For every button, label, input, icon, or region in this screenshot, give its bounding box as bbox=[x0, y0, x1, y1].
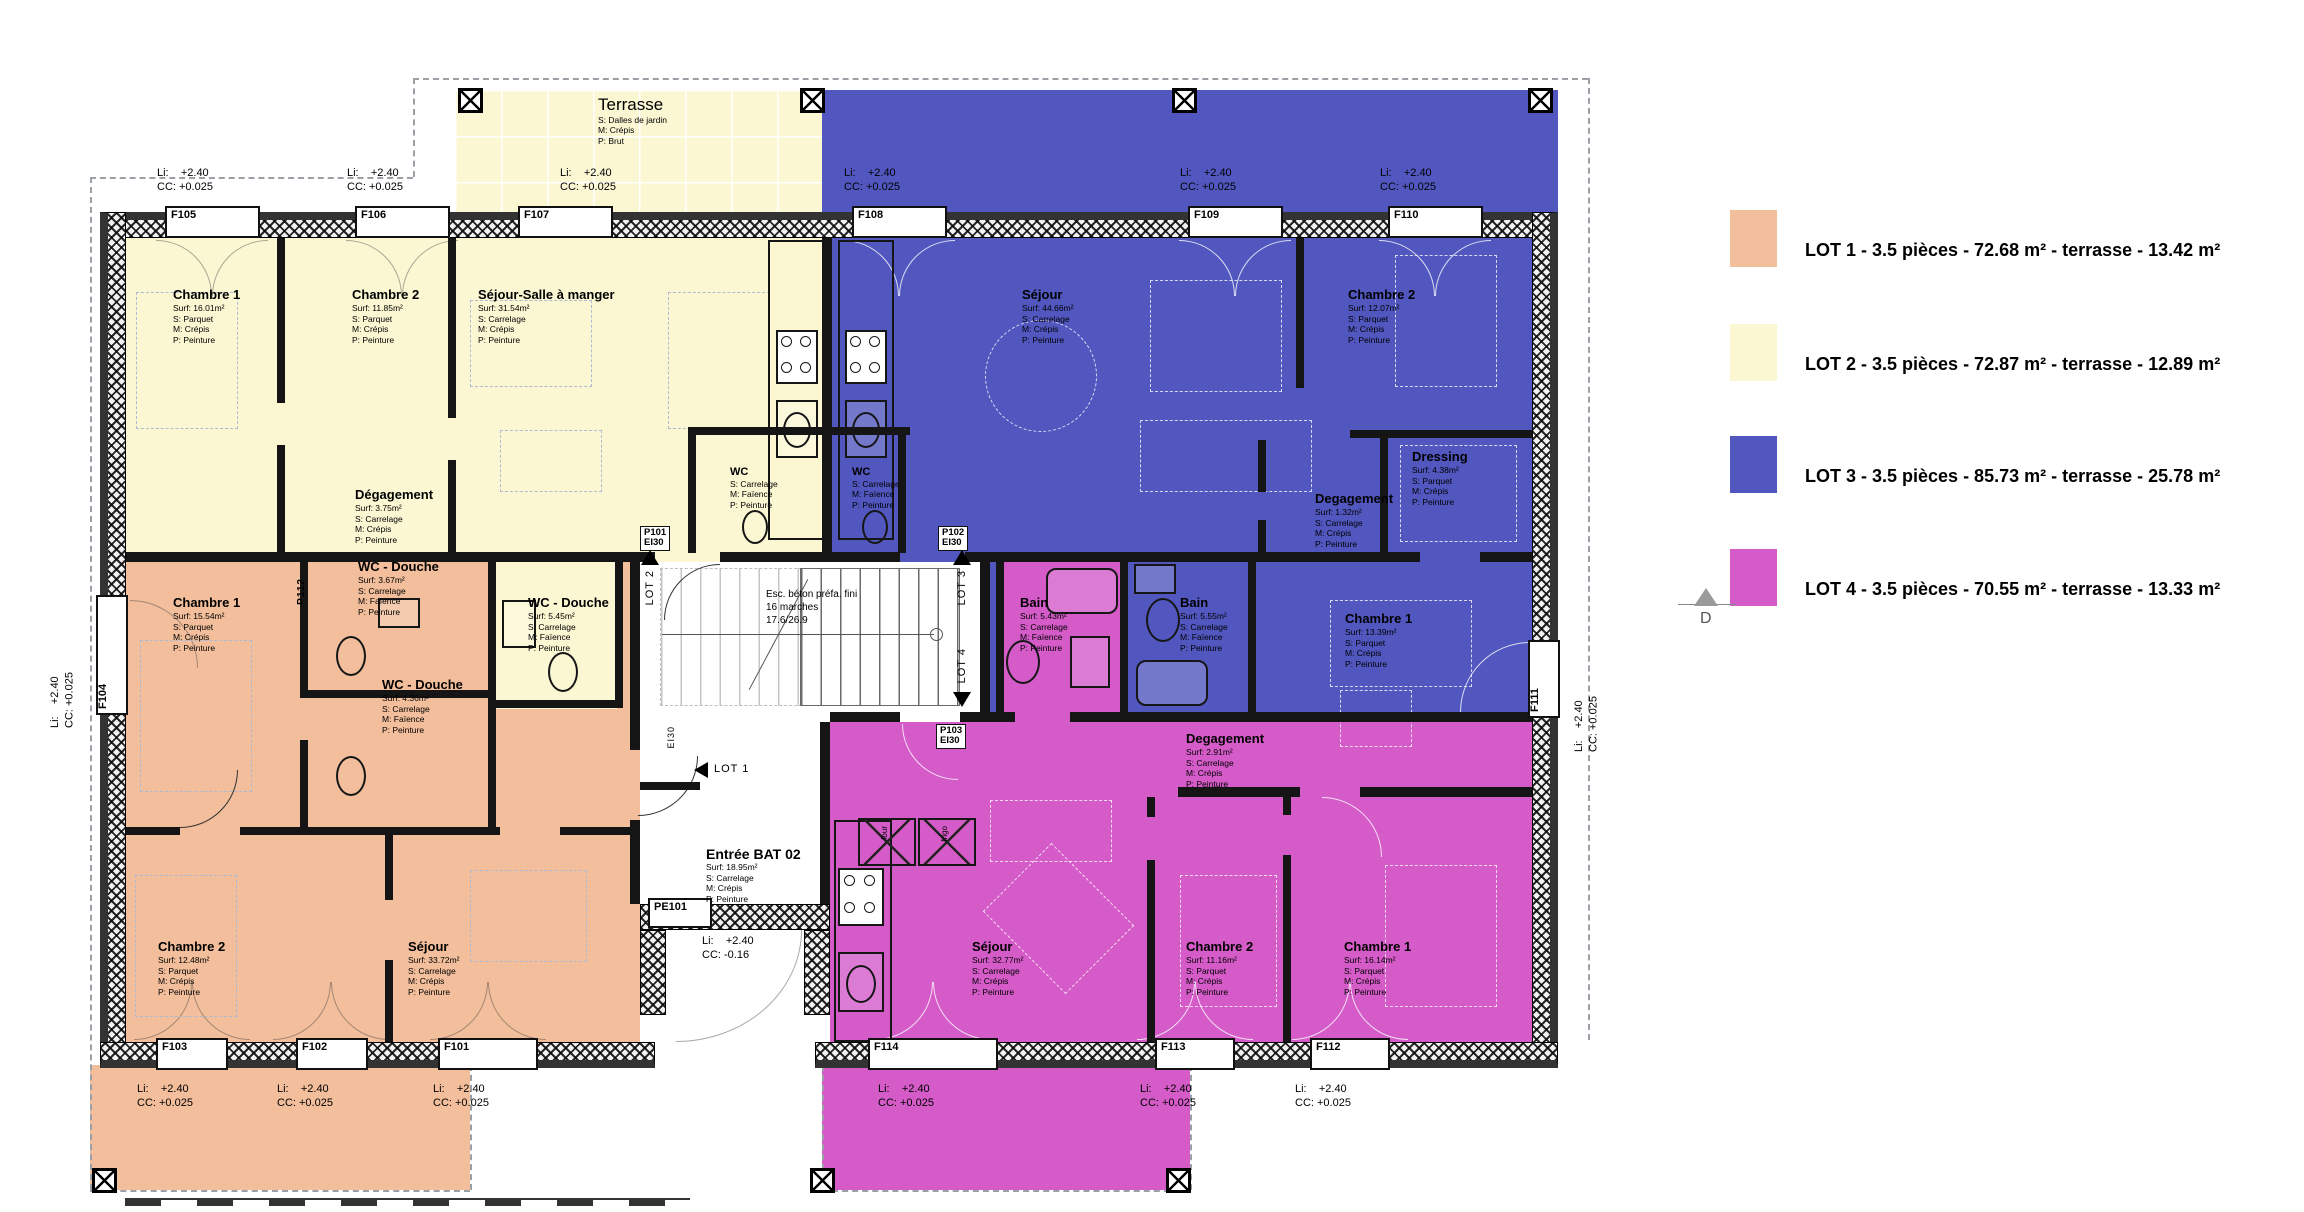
room-title: Chambre 1 bbox=[173, 288, 240, 303]
room-label-lot4-degagement: DegagementSurf: 2.91m²S: CarrelageM: Cré… bbox=[1186, 732, 1264, 789]
level-note: Li: +2.40CC: +0.025 bbox=[347, 166, 403, 195]
stair-note: Esc. béton préfa. fini16 marches17.6/26.… bbox=[766, 588, 857, 627]
room-specs: Surf: 44.66m²S: CarrelageM: CrépisP: Pei… bbox=[1022, 303, 1074, 346]
window-label: F114 bbox=[874, 1041, 898, 1053]
room-specs: S: CarrelageM: FaïenceP: Peinture bbox=[852, 479, 900, 511]
wall bbox=[1147, 797, 1155, 817]
furniture bbox=[990, 800, 1112, 862]
window-label: F107 bbox=[524, 209, 549, 221]
door-tag-ei30: EI30 bbox=[666, 726, 676, 749]
wall bbox=[820, 722, 830, 904]
room-title: Degagement bbox=[1315, 492, 1393, 507]
room-title: Degagement bbox=[1186, 732, 1264, 747]
toilet bbox=[336, 636, 366, 676]
wall bbox=[385, 835, 393, 900]
lot3-arrow-label: LOT 3 bbox=[956, 570, 968, 605]
lot4-arrow-icon bbox=[953, 692, 971, 707]
window-label: F105 bbox=[171, 209, 196, 221]
room-specs: Surf: 12.07m²S: ParquetM: CrépisP: Peint… bbox=[1348, 303, 1415, 346]
lot2-arrow-icon bbox=[641, 550, 659, 565]
room-title: WC - Douche bbox=[382, 678, 463, 693]
room-title: Séjour-Salle à manger bbox=[478, 288, 615, 303]
room-specs: Surf: 16.14m²S: ParquetM: CrépisP: Peint… bbox=[1344, 955, 1411, 998]
wall bbox=[277, 445, 285, 552]
wall bbox=[640, 782, 700, 790]
room-title: Chambre 1 bbox=[1345, 612, 1412, 627]
floor-plan-canvas: Terrasse S: Dalles de jardinM: CrépisP: … bbox=[0, 0, 2304, 1212]
level-note: Li: +2.40CC: +0.025 bbox=[878, 1082, 934, 1111]
wall bbox=[448, 238, 456, 418]
toilet bbox=[336, 756, 366, 796]
room-specs: Surf: 13.39m²S: ParquetM: CrépisP: Peint… bbox=[1345, 627, 1412, 670]
window-f102: F102 bbox=[296, 1038, 368, 1070]
level-note: Li: +2.40CC: +0.025 bbox=[1295, 1082, 1351, 1111]
lot3-arrow-icon bbox=[953, 550, 971, 565]
room-title: Séjour bbox=[408, 940, 460, 955]
window-f107: F107 bbox=[518, 206, 613, 238]
wall bbox=[1147, 860, 1155, 1042]
window-f103: F103 bbox=[156, 1038, 228, 1070]
wall bbox=[830, 712, 900, 722]
room-label-lot3-chambre1: Chambre 1Surf: 13.39m²S: ParquetM: Crépi… bbox=[1345, 612, 1412, 669]
room-label-lot2-sejour: Séjour-Salle à mangerSurf: 31.54m²S: Car… bbox=[478, 288, 615, 345]
window-label: F103 bbox=[162, 1041, 187, 1053]
terrace-label: Terrasse S: Dalles de jardinM: CrépisP: … bbox=[598, 95, 667, 146]
room-label-lot1-sejour: SéjourSurf: 33.72m²S: CarrelageM: Crépis… bbox=[408, 940, 460, 997]
boundary-dash bbox=[90, 1190, 470, 1192]
washbasin bbox=[1134, 564, 1176, 594]
wall bbox=[240, 827, 500, 835]
room-label-lot3-wc: WCS: CarrelageM: FaïenceP: Peinture bbox=[852, 466, 900, 511]
wall bbox=[1283, 797, 1291, 815]
room-title: Entrée BAT 02 bbox=[706, 846, 801, 862]
wall bbox=[688, 427, 830, 435]
window-label: F106 bbox=[361, 209, 386, 221]
room-specs: Surf: 1.32m²S: CarrelageM: CrépisP: Pein… bbox=[1315, 507, 1393, 550]
wall bbox=[1283, 855, 1291, 1042]
room-title: WC bbox=[730, 466, 778, 479]
room-specs: Surf: 12.48m²S: ParquetM: CrépisP: Peint… bbox=[158, 955, 225, 998]
room-title: Dressing bbox=[1412, 450, 1468, 465]
window-f104: F104 bbox=[96, 595, 128, 715]
legend-swatch-lot4 bbox=[1730, 549, 1777, 606]
bed bbox=[140, 640, 252, 792]
room-title: Chambre 2 bbox=[1348, 288, 1415, 303]
room-title: Chambre 1 bbox=[1344, 940, 1411, 955]
room-specs: Surf: 4.38m²S: ParquetM: CrépisP: Peintu… bbox=[1412, 465, 1468, 508]
boundary-dash bbox=[413, 78, 415, 177]
furniture bbox=[500, 430, 602, 492]
door-tag-p103: P103EI30 bbox=[936, 724, 966, 749]
furniture bbox=[1150, 280, 1282, 392]
door-label: PE101 bbox=[654, 901, 687, 913]
wall bbox=[720, 552, 900, 562]
room-label-entree: Entrée BAT 02Surf: 18.95m²S: CarrelageM:… bbox=[706, 846, 801, 905]
oven-label: four bbox=[880, 826, 889, 840]
door-tag-p101: P101EI30 bbox=[640, 526, 670, 551]
level-note: Li: +2.40CC: +0.025 bbox=[157, 166, 213, 195]
wall bbox=[1248, 562, 1256, 712]
sink-bowl bbox=[846, 965, 876, 1003]
window-f105: F105 bbox=[165, 206, 260, 238]
terrace-title: Terrasse bbox=[598, 95, 667, 115]
door-pe101: PE101 bbox=[648, 898, 712, 928]
room-label-lot4-sejour: SéjourSurf: 32.77m²S: CarrelageM: Crépis… bbox=[972, 940, 1024, 997]
window-label: F102 bbox=[302, 1041, 327, 1053]
wall bbox=[965, 552, 1420, 562]
legend-label-lot3: LOT 3 - 3.5 pièces - 85.73 m² - terrasse… bbox=[1805, 466, 2220, 487]
level-note: Li: +2.40CC: +0.025 bbox=[433, 1082, 489, 1111]
wall bbox=[1070, 712, 1532, 722]
terrace-specs: S: Dalles de jardinM: CrépisP: Brut bbox=[598, 115, 667, 147]
room-title: Chambre 2 bbox=[158, 940, 225, 955]
level-note: Li: +2.40CC: +0.025 bbox=[48, 598, 77, 728]
room-specs: Surf: 3.67m²S: CarrelageM: FaïenceP: Pei… bbox=[358, 575, 439, 618]
level-note: Li: +2.40CC: +0.025 bbox=[1140, 1082, 1196, 1111]
stair-direction-line bbox=[662, 634, 934, 635]
wall bbox=[960, 712, 1015, 722]
wall bbox=[277, 238, 285, 403]
door-tag-p112: P112 bbox=[296, 578, 307, 605]
wall bbox=[688, 435, 696, 553]
room-title: Chambre 2 bbox=[1186, 940, 1253, 955]
wall bbox=[640, 930, 666, 1015]
wall bbox=[804, 930, 830, 1015]
wall bbox=[822, 238, 832, 552]
room-specs: Surf: 5.45m²S: CarrelageM: FaïenceP: Pei… bbox=[528, 611, 609, 654]
survey-marker-icon bbox=[1528, 88, 1553, 113]
boundary-dash bbox=[90, 177, 92, 1190]
wall bbox=[560, 827, 640, 835]
level-note: Li: +2.40CC: +0.025 bbox=[560, 166, 616, 195]
wall bbox=[980, 562, 990, 722]
room-label-lot4-bain: BainSurf: 5.43m²S: CarrelageM: FaïenceP:… bbox=[1020, 596, 1068, 653]
room-title: Dégagement bbox=[355, 488, 433, 503]
room-label-lot2-chambre1: Chambre 1Surf: 16.01m²S: ParquetM: Crépi… bbox=[173, 288, 240, 345]
window-f111: F111 bbox=[1528, 640, 1560, 718]
window-f101: F101 bbox=[438, 1038, 538, 1070]
legend-swatch-lot3 bbox=[1730, 436, 1777, 493]
level-note-entrance: Li: +2.40CC: -0.16 bbox=[702, 934, 754, 963]
room-title: Chambre 1 bbox=[173, 596, 240, 611]
wall bbox=[996, 562, 1004, 712]
room-label-lot2-chambre2: Chambre 2Surf: 11.85m²S: ParquetM: Crépi… bbox=[352, 288, 419, 345]
window-label: F108 bbox=[858, 209, 883, 221]
scale-bar bbox=[125, 1198, 690, 1212]
window-f106: F106 bbox=[355, 206, 450, 238]
room-label-lot3-bain: BainSurf: 5.55m²S: CarrelageM: FaïenceP:… bbox=[1180, 596, 1228, 653]
toilet bbox=[548, 652, 578, 692]
room-specs: Surf: 5.55m²S: CarrelageM: FaïenceP: Pei… bbox=[1180, 611, 1228, 654]
wall bbox=[1480, 552, 1532, 562]
wall bbox=[488, 562, 496, 707]
room-specs: Surf: 15.54m²S: ParquetM: CrépisP: Peint… bbox=[173, 611, 240, 654]
fridge-label: frigo bbox=[940, 826, 949, 842]
window-label: F109 bbox=[1194, 209, 1219, 221]
furniture bbox=[668, 292, 770, 429]
wall bbox=[1258, 440, 1266, 492]
room-title: Bain bbox=[1180, 596, 1228, 611]
legend-swatch-lot1 bbox=[1730, 210, 1777, 267]
lot1-arrow-label: LOT 1 bbox=[714, 763, 749, 775]
window-f114: F114 bbox=[868, 1038, 998, 1070]
wall bbox=[488, 708, 496, 827]
wall bbox=[126, 827, 180, 835]
wall bbox=[1258, 520, 1266, 552]
survey-marker-icon bbox=[458, 88, 483, 113]
wall bbox=[448, 460, 456, 552]
survey-marker-icon bbox=[1166, 1168, 1191, 1193]
room-specs: Surf: 11.16m²S: ParquetM: CrépisP: Peint… bbox=[1186, 955, 1253, 998]
room-title: Séjour bbox=[1022, 288, 1074, 303]
window-f109: F109 bbox=[1188, 206, 1283, 238]
room-label-lot3-dressing: DressingSurf: 4.38m²S: ParquetM: CrépisP… bbox=[1412, 450, 1468, 507]
window-label: F110 bbox=[1394, 209, 1418, 221]
room-specs: Surf: 4.36m²S: CarrelageM: FaïenceP: Pei… bbox=[382, 693, 463, 736]
sofa bbox=[1140, 420, 1312, 492]
room-label-lot1-chambre1: Chambre 1Surf: 15.54m²S: ParquetM: Crépi… bbox=[173, 596, 240, 653]
wall bbox=[488, 700, 623, 708]
room-title: WC - Douche bbox=[528, 596, 609, 611]
room-label-lot2-wcdouche: WC - DoucheSurf: 5.45m²S: CarrelageM: Fa… bbox=[528, 596, 609, 653]
room-title: Chambre 2 bbox=[352, 288, 419, 303]
level-note: Li: +2.40CC: +0.025 bbox=[277, 1082, 333, 1111]
level-note: Li: +2.40CC: +0.025 bbox=[137, 1082, 193, 1111]
room-label-lot4-chambre1: Chambre 1Surf: 16.14m²S: ParquetM: Crépi… bbox=[1344, 940, 1411, 997]
room-label-lot2-degagement: DégagementSurf: 3.75m²S: CarrelageM: Cré… bbox=[355, 488, 433, 545]
section-marker-icon bbox=[1694, 588, 1718, 606]
toilet bbox=[1146, 598, 1180, 642]
window-f112: F112 bbox=[1310, 1038, 1390, 1070]
lot1-arrow-icon bbox=[694, 762, 708, 778]
window-label: F101 bbox=[444, 1041, 469, 1053]
section-marker-label: D bbox=[1700, 610, 1712, 628]
room-specs: Surf: 2.91m²S: CarrelageM: CrépisP: Pein… bbox=[1186, 747, 1264, 790]
wall bbox=[1296, 238, 1304, 388]
room-label-lot3-sejour: SéjourSurf: 44.66m²S: CarrelageM: Crépis… bbox=[1022, 288, 1074, 345]
lot4-arrow-label: LOT 4 bbox=[956, 648, 968, 683]
legend-label-lot4: LOT 4 - 3.5 pièces - 70.55 m² - terrasse… bbox=[1805, 579, 2220, 600]
room-specs: Surf: 32.77m²S: CarrelageM: CrépisP: Pei… bbox=[972, 955, 1024, 998]
stair-line-end bbox=[930, 628, 943, 641]
window-label: F113 bbox=[1161, 1041, 1185, 1053]
room-label-lot3-chambre2: Chambre 2Surf: 12.07m²S: ParquetM: Crépi… bbox=[1348, 288, 1415, 345]
legend-label-lot2: LOT 2 - 3.5 pièces - 72.87 m² - terrasse… bbox=[1805, 354, 2220, 375]
level-note: Li: +2.40CC: +0.025 bbox=[1572, 622, 1601, 752]
room-specs: Surf: 5.43m²S: CarrelageM: FaïenceP: Pei… bbox=[1020, 611, 1068, 654]
window-label: F111 bbox=[1529, 688, 1541, 712]
room-title: WC - Douche bbox=[358, 560, 439, 575]
room-title: WC bbox=[852, 466, 900, 479]
room-label-lot3-degagement: DegagementSurf: 1.32m²S: CarrelageM: Cré… bbox=[1315, 492, 1393, 549]
bathtub bbox=[1136, 660, 1208, 706]
wall bbox=[615, 562, 623, 707]
room-label-lot1-chambre2: Chambre 2Surf: 12.48m²S: ParquetM: Crépi… bbox=[158, 940, 225, 997]
survey-marker-icon bbox=[800, 88, 825, 113]
room-specs: Surf: 16.01m²S: ParquetM: CrépisP: Peint… bbox=[173, 303, 240, 346]
window-f113: F113 bbox=[1155, 1038, 1235, 1070]
boundary-dash bbox=[1588, 78, 1590, 1040]
room-specs: Surf: 3.75m²S: CarrelageM: CrépisP: Pein… bbox=[355, 503, 433, 546]
furniture bbox=[470, 870, 587, 962]
boundary-dash bbox=[413, 78, 1588, 80]
room-specs: Surf: 33.72m²S: CarrelageM: CrépisP: Pei… bbox=[408, 955, 460, 998]
room-specs: Surf: 31.54m²S: CarrelageM: CrépisP: Pei… bbox=[478, 303, 615, 346]
room-title: Bain bbox=[1020, 596, 1068, 611]
level-note: Li: +2.40CC: +0.025 bbox=[1180, 166, 1236, 195]
level-note: Li: +2.40CC: +0.025 bbox=[844, 166, 900, 195]
door-tag-p102: P102EI30 bbox=[938, 526, 968, 551]
level-note: Li: +2.40CC: +0.025 bbox=[1380, 166, 1436, 195]
survey-marker-icon bbox=[810, 1168, 835, 1193]
wall bbox=[630, 562, 640, 750]
wall bbox=[1120, 562, 1128, 712]
wall bbox=[830, 427, 910, 435]
washbasin bbox=[1070, 636, 1110, 688]
window-f108: F108 bbox=[852, 206, 947, 238]
window-label: F104 bbox=[97, 684, 109, 709]
room-specs: Surf: 11.85m²S: ParquetM: CrépisP: Peint… bbox=[352, 303, 419, 346]
room-specs: Surf: 18.95m²S: CarrelageM: CrépisP: Pei… bbox=[706, 862, 801, 905]
wall bbox=[1360, 787, 1532, 797]
boundary-dash bbox=[822, 1190, 1190, 1192]
legend-label-lot1: LOT 1 - 3.5 pièces - 72.68 m² - terrasse… bbox=[1805, 240, 2220, 261]
toilet bbox=[742, 510, 768, 544]
room-label-lot1-wcdouche2: WC - DoucheSurf: 4.36m²S: CarrelageM: Fa… bbox=[382, 678, 463, 735]
room-specs: S: CarrelageM: FaïenceP: Peinture bbox=[730, 479, 778, 511]
legend-swatch-lot2 bbox=[1730, 324, 1777, 381]
lot2-arrow-label: LOT 2 bbox=[644, 570, 656, 605]
room-label-lot1-wcdouche1: WC - DoucheSurf: 3.67m²S: CarrelageM: Fa… bbox=[358, 560, 439, 617]
wall bbox=[1350, 430, 1532, 438]
window-f110: F110 bbox=[1388, 206, 1483, 238]
wall bbox=[100, 212, 1558, 238]
survey-marker-icon bbox=[92, 1168, 117, 1193]
window-label: F112 bbox=[1316, 1041, 1340, 1053]
room-title: Séjour bbox=[972, 940, 1024, 955]
room-label-lot4-chambre2: Chambre 2Surf: 11.16m²S: ParquetM: Crépi… bbox=[1186, 940, 1253, 997]
survey-marker-icon bbox=[1172, 88, 1197, 113]
wall bbox=[385, 960, 393, 1042]
wall bbox=[300, 740, 308, 835]
toilet bbox=[862, 510, 888, 544]
room-label-lot2-wc: WCS: CarrelageM: FaïenceP: Peinture bbox=[730, 466, 778, 511]
